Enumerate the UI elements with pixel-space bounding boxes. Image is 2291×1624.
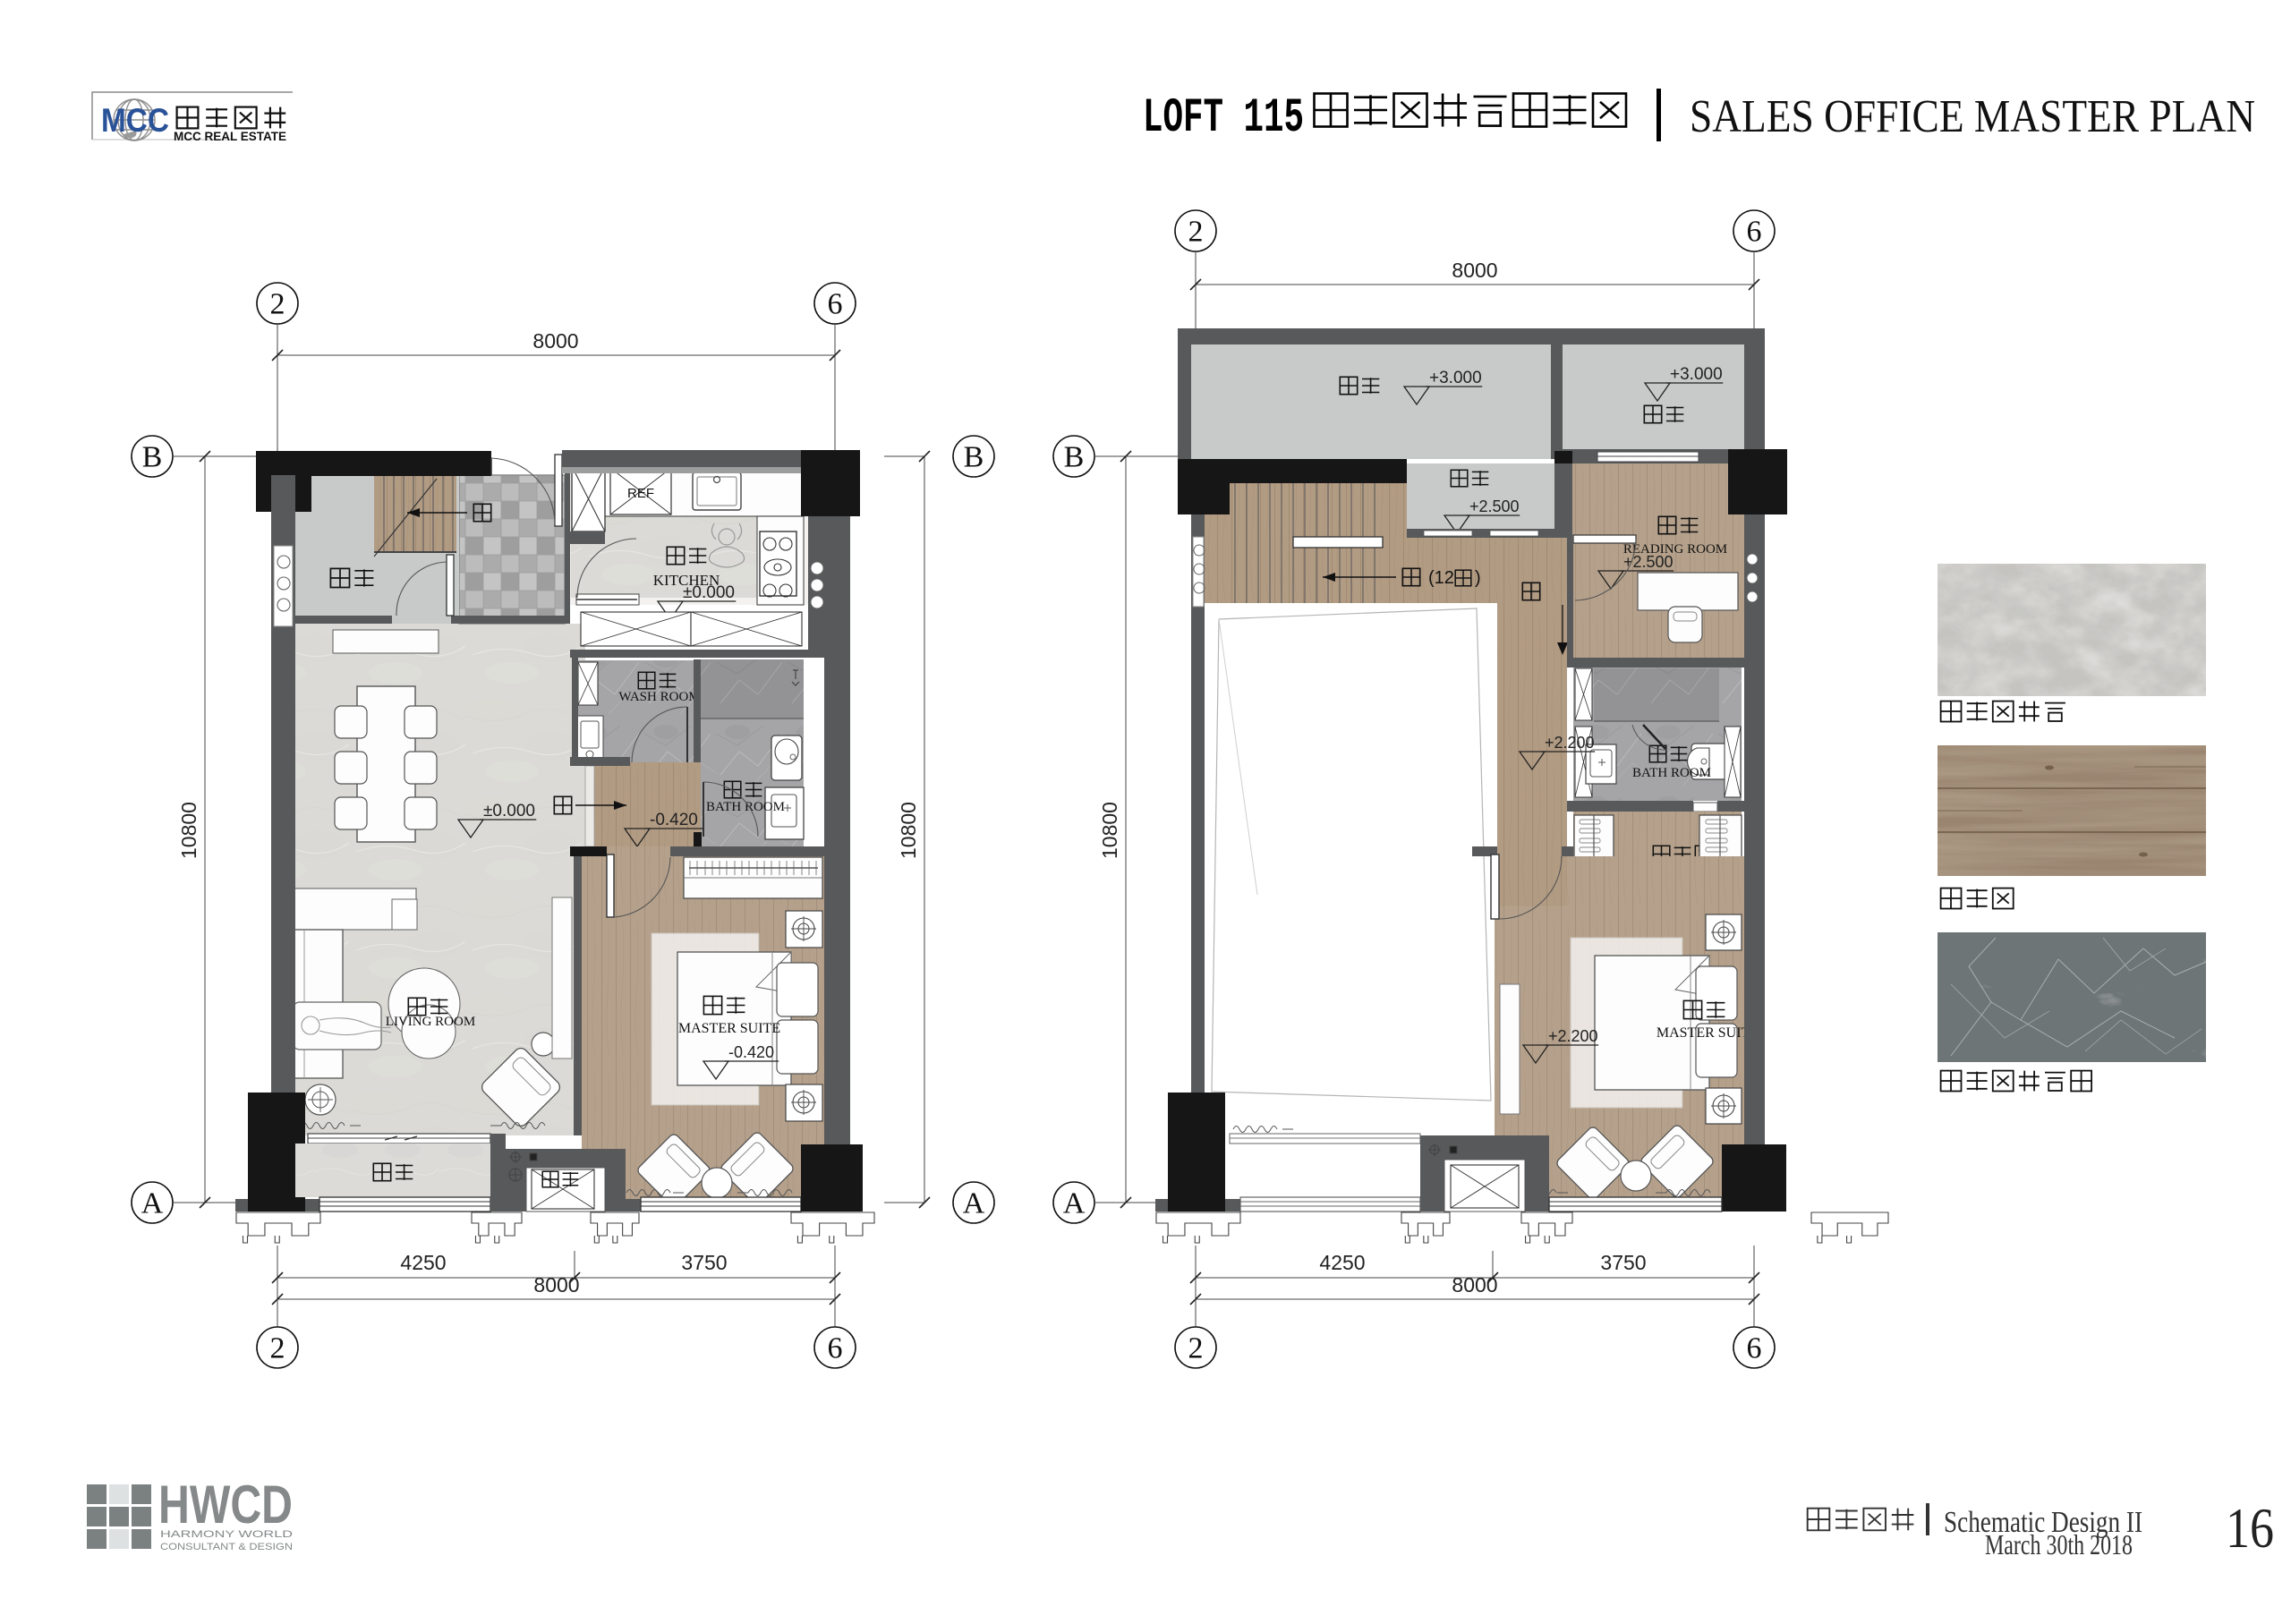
- svg-text:MCC: MCC: [101, 102, 169, 139]
- svg-text:HARMONY WORLD: HARMONY WORLD: [160, 1529, 293, 1540]
- svg-text:(12: (12: [1428, 568, 1454, 588]
- svg-text:+2.500: +2.500: [1469, 497, 1520, 515]
- svg-text:2: 2: [270, 1332, 285, 1365]
- svg-text:+2.200: +2.200: [1548, 1027, 1598, 1045]
- svg-text:16: 16: [2226, 1496, 2274, 1560]
- svg-text:±0.000: ±0.000: [683, 583, 735, 602]
- svg-text:10800: 10800: [177, 802, 200, 859]
- svg-text:REF: REF: [627, 486, 654, 501]
- svg-text:MCC REAL ESTATE: MCC REAL ESTATE: [174, 130, 286, 143]
- svg-text:2: 2: [1188, 1332, 1204, 1365]
- svg-text:-0.420: -0.420: [650, 811, 698, 829]
- svg-text:HWCD: HWCD: [158, 1475, 293, 1535]
- svg-text:6: 6: [828, 1332, 843, 1365]
- svg-text:3750: 3750: [1600, 1251, 1646, 1274]
- svg-text:B: B: [964, 441, 984, 474]
- svg-text:A: A: [141, 1187, 164, 1220]
- svg-text:6: 6: [828, 288, 843, 321]
- svg-text:BATH ROOM: BATH ROOM: [1632, 766, 1711, 780]
- svg-text:-0.420: -0.420: [728, 1043, 774, 1061]
- svg-text:8000: 8000: [1452, 259, 1497, 282]
- svg-text:2: 2: [270, 288, 285, 321]
- svg-text:8000: 8000: [532, 329, 578, 353]
- svg-text:LIVING ROOM: LIVING ROOM: [386, 1015, 475, 1029]
- svg-text:±0.000: ±0.000: [483, 802, 535, 821]
- svg-text:10800: 10800: [1098, 802, 1121, 859]
- svg-text:WASH ROOM: WASH ROOM: [618, 690, 700, 704]
- svg-text:LOFT 115: LOFT 115: [1143, 91, 1304, 146]
- svg-text:6: 6: [1747, 216, 1762, 249]
- svg-text:MASTER SUITE: MASTER SUITE: [678, 1021, 780, 1036]
- svg-text:B: B: [142, 441, 163, 474]
- svg-text:B: B: [1064, 441, 1085, 474]
- svg-text:+3.000: +3.000: [1670, 365, 1723, 384]
- svg-text:): ): [1475, 568, 1481, 588]
- svg-text:4250: 4250: [1319, 1251, 1365, 1274]
- svg-text:A: A: [1063, 1187, 1086, 1220]
- svg-text:SALES OFFICE MASTER PLAN: SALES OFFICE MASTER PLAN: [1690, 91, 2255, 142]
- svg-text:CONSULTANT & DESIGN: CONSULTANT & DESIGN: [160, 1542, 293, 1552]
- svg-text:+2.500: +2.500: [1623, 553, 1674, 571]
- svg-text:8000: 8000: [533, 1273, 579, 1297]
- svg-text:March 30th 2018: March 30th 2018: [1985, 1528, 2133, 1560]
- svg-text:3750: 3750: [681, 1251, 727, 1274]
- svg-text:+3.000: +3.000: [1429, 369, 1482, 387]
- svg-text:2: 2: [1188, 216, 1204, 249]
- svg-text:MASTER SUITE: MASTER SUITE: [1657, 1025, 1759, 1041]
- svg-text:8000: 8000: [1452, 1273, 1497, 1297]
- svg-text:4250: 4250: [400, 1251, 446, 1274]
- svg-text:10800: 10800: [897, 802, 920, 859]
- svg-text:6: 6: [1747, 1332, 1762, 1365]
- svg-text:A: A: [963, 1187, 985, 1220]
- svg-text:+2.200: +2.200: [1545, 734, 1595, 752]
